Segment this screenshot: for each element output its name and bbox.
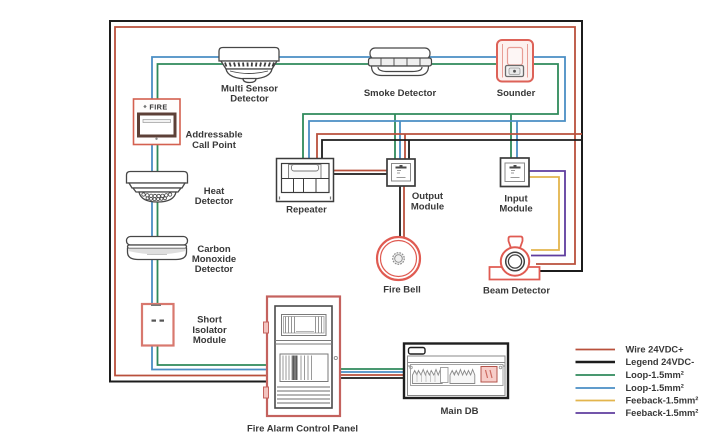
svg-text:Module: Module (411, 202, 444, 213)
svg-text:FIRE: FIRE (149, 103, 167, 112)
svg-text:Loop-1.5mm²: Loop-1.5mm² (626, 383, 684, 393)
svg-text:Loop-1.5mm²: Loop-1.5mm² (626, 370, 684, 380)
svg-text:Wire 24VDC+: Wire 24VDC+ (626, 345, 685, 355)
svg-text:Module: Module (193, 335, 226, 346)
svg-text:Legend 24VDC-: Legend 24VDC- (626, 357, 695, 367)
svg-text:Short: Short (197, 315, 223, 326)
svg-text:Smoke Detector: Smoke Detector (364, 88, 437, 99)
svg-text:Feeback-1.5mm²: Feeback-1.5mm² (626, 396, 699, 406)
svg-text:Module: Module (499, 204, 532, 215)
svg-text:Repeater: Repeater (286, 205, 327, 216)
svg-text:Fire Alarm Control Panel: Fire Alarm Control Panel (247, 424, 358, 435)
svg-text:Sounder: Sounder (497, 88, 536, 99)
svg-text:Fire Bell: Fire Bell (383, 285, 421, 296)
svg-text:Beam Detector: Beam Detector (483, 286, 550, 297)
svg-text:Call Point: Call Point (192, 140, 237, 151)
svg-text:Detector: Detector (195, 264, 234, 275)
svg-text:Main DB: Main DB (441, 406, 479, 417)
svg-text:Detector: Detector (230, 94, 269, 105)
svg-text:Addressable: Addressable (185, 130, 242, 141)
svg-text:Detector: Detector (195, 196, 234, 207)
svg-text:Feeback-1.5mm²: Feeback-1.5mm² (626, 408, 699, 418)
svg-text:Output: Output (412, 191, 444, 202)
